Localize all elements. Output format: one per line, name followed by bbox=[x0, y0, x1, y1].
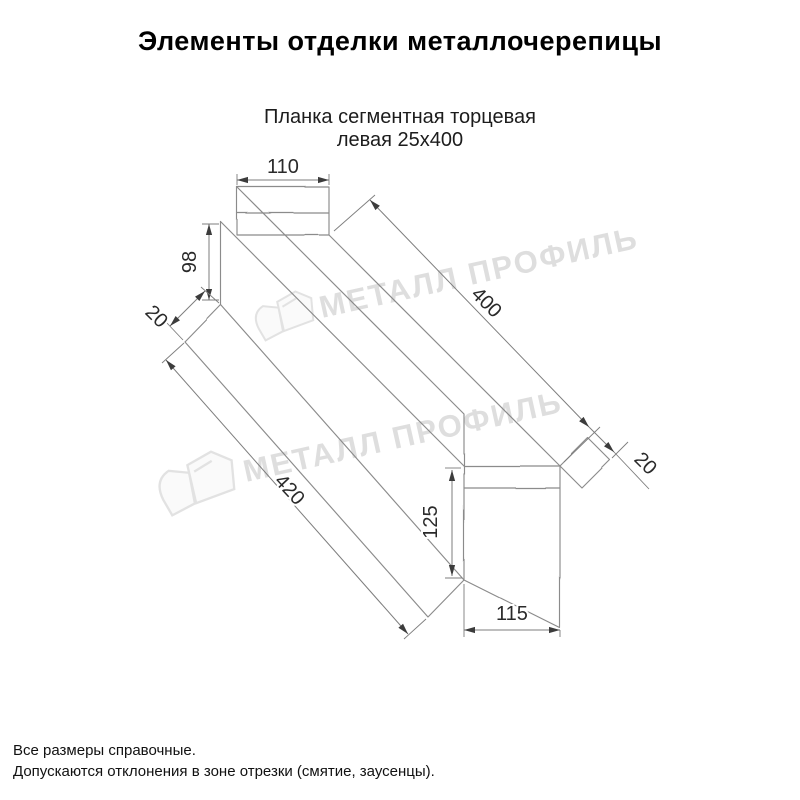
dim-far-hem bbox=[166, 287, 219, 340]
footnote-tolerances: Допускаются отклонения в зоне отрезки (с… bbox=[13, 761, 435, 782]
flange-end-view bbox=[237, 187, 329, 235]
near-hem-fold bbox=[560, 438, 610, 488]
dim-far-end-height bbox=[202, 224, 219, 300]
watermark-top: МЕТАЛЛ ПРОФИЛЬ bbox=[252, 220, 642, 341]
footnotes: Все размеры справочные. Допускаются откл… bbox=[13, 740, 435, 782]
dim-label-110: 110 bbox=[267, 156, 299, 178]
metall-profil-logo-icon bbox=[154, 448, 241, 517]
watermark-bottom: МЕТАЛЛ ПРОФИЛЬ bbox=[154, 384, 566, 517]
dim-label-20-far: 20 bbox=[141, 301, 172, 332]
technical-drawing: МЕТАЛЛ ПРОФИЛЬ МЕТАЛЛ ПРОФИЛЬ bbox=[0, 0, 800, 800]
dim-label-115: 115 bbox=[496, 603, 528, 625]
dim-label-20-near: 20 bbox=[630, 448, 661, 479]
drawing-page: Элементы отделки металлочерепицы Планка … bbox=[0, 0, 800, 800]
far-hem-edge bbox=[185, 305, 221, 342]
long-edge-flange-left bbox=[221, 222, 464, 466]
metall-profil-logo-icon bbox=[252, 288, 319, 341]
footnote-reference-sizes: Все размеры справочные. bbox=[13, 740, 435, 761]
dimension-labels: 110 98 20 400 20 420 125 115 bbox=[141, 156, 661, 625]
dim-label-98: 98 bbox=[179, 251, 201, 273]
dim-label-125: 125 bbox=[420, 505, 442, 538]
